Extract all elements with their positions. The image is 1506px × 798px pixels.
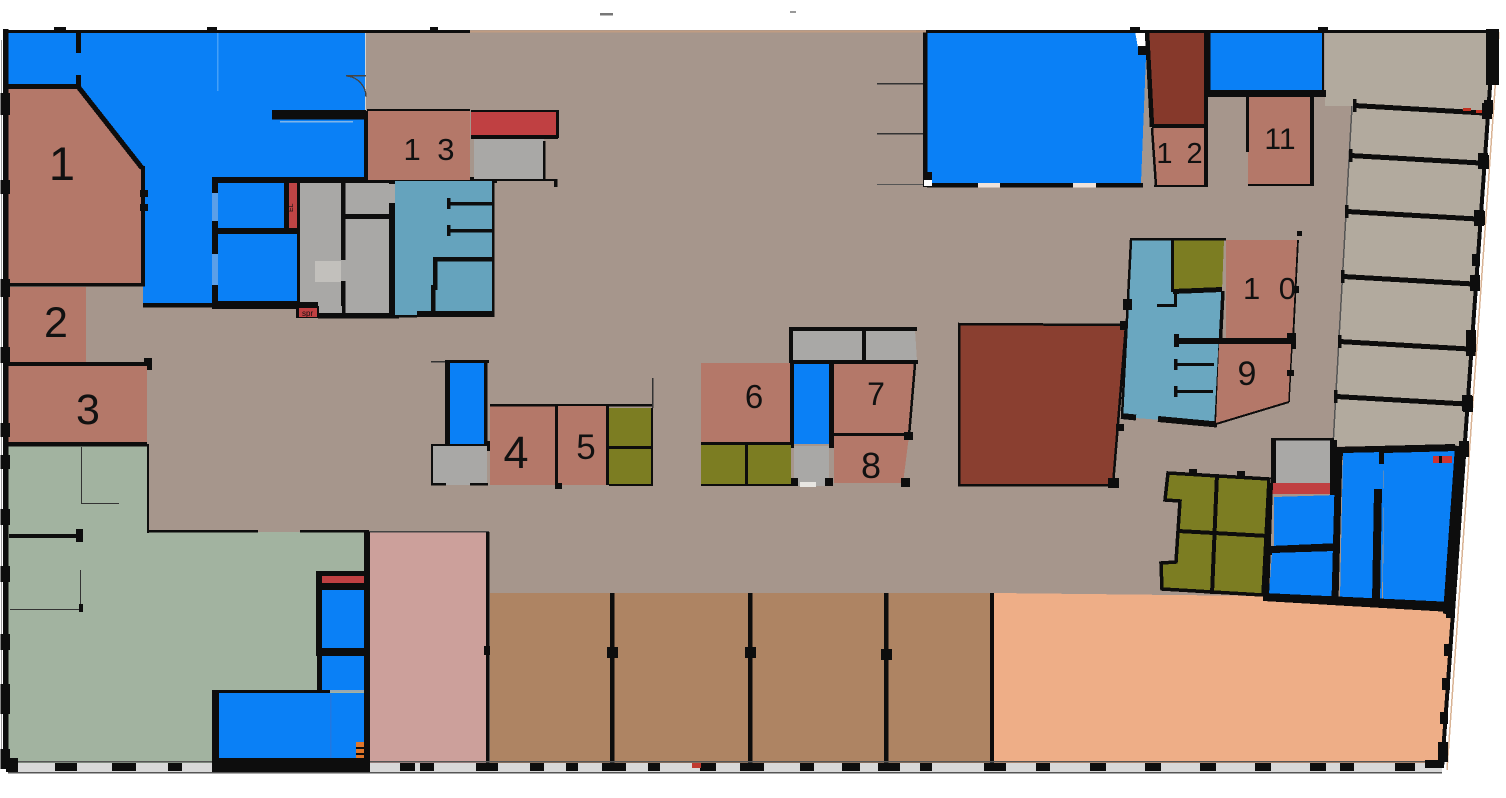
svg-text:1 3: 1 3 — [403, 132, 458, 167]
svg-text:2: 2 — [44, 299, 68, 347]
svg-text:6: 6 — [745, 378, 763, 415]
svg-text:7: 7 — [867, 376, 885, 412]
svg-text:11: 11 — [1264, 123, 1295, 156]
svg-text:8: 8 — [861, 445, 881, 486]
svg-text:4: 4 — [503, 427, 528, 478]
svg-text:1 0: 1 0 — [1243, 271, 1301, 306]
svg-text:9: 9 — [1238, 355, 1257, 393]
svg-text:1 2: 1 2 — [1156, 138, 1205, 170]
svg-text:1: 1 — [49, 137, 75, 190]
svg-text:spr: spr — [302, 309, 313, 318]
svg-text:3: 3 — [76, 386, 100, 434]
svg-text:EL: EL — [288, 203, 295, 212]
svg-text:5: 5 — [576, 428, 595, 467]
